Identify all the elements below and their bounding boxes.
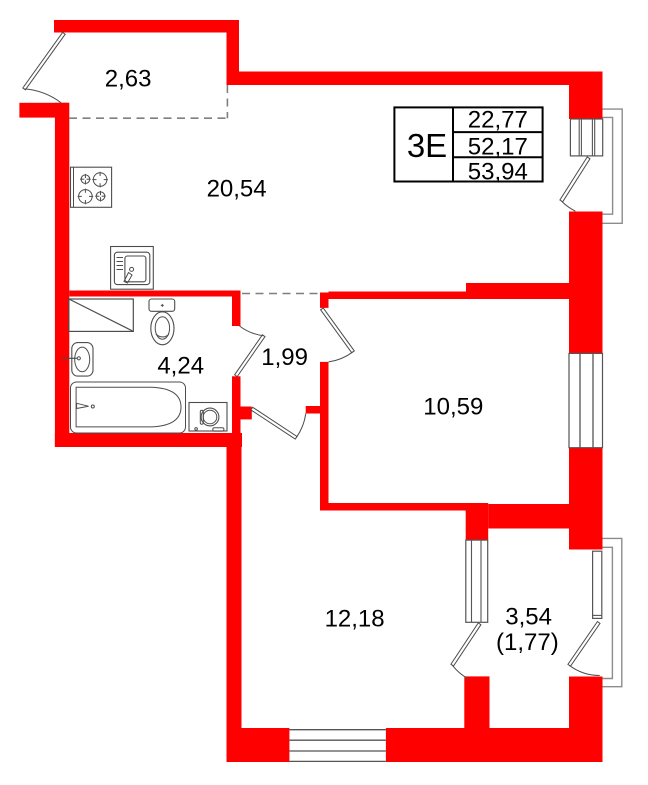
svg-text:22,77: 22,77 (468, 107, 528, 134)
svg-text:12,18: 12,18 (325, 606, 385, 633)
svg-text:52,17: 52,17 (468, 133, 528, 160)
svg-text:2,63: 2,63 (105, 66, 152, 93)
svg-text:3Е: 3Е (407, 127, 447, 164)
svg-text:53,94: 53,94 (468, 158, 528, 185)
svg-text:(1,77): (1,77) (496, 629, 559, 656)
svg-text:3,54: 3,54 (505, 604, 552, 631)
svg-text:10,59: 10,59 (423, 393, 483, 420)
svg-text:20,54: 20,54 (207, 176, 267, 203)
svg-text:1,99: 1,99 (261, 344, 308, 371)
svg-text:4,24: 4,24 (157, 353, 204, 380)
